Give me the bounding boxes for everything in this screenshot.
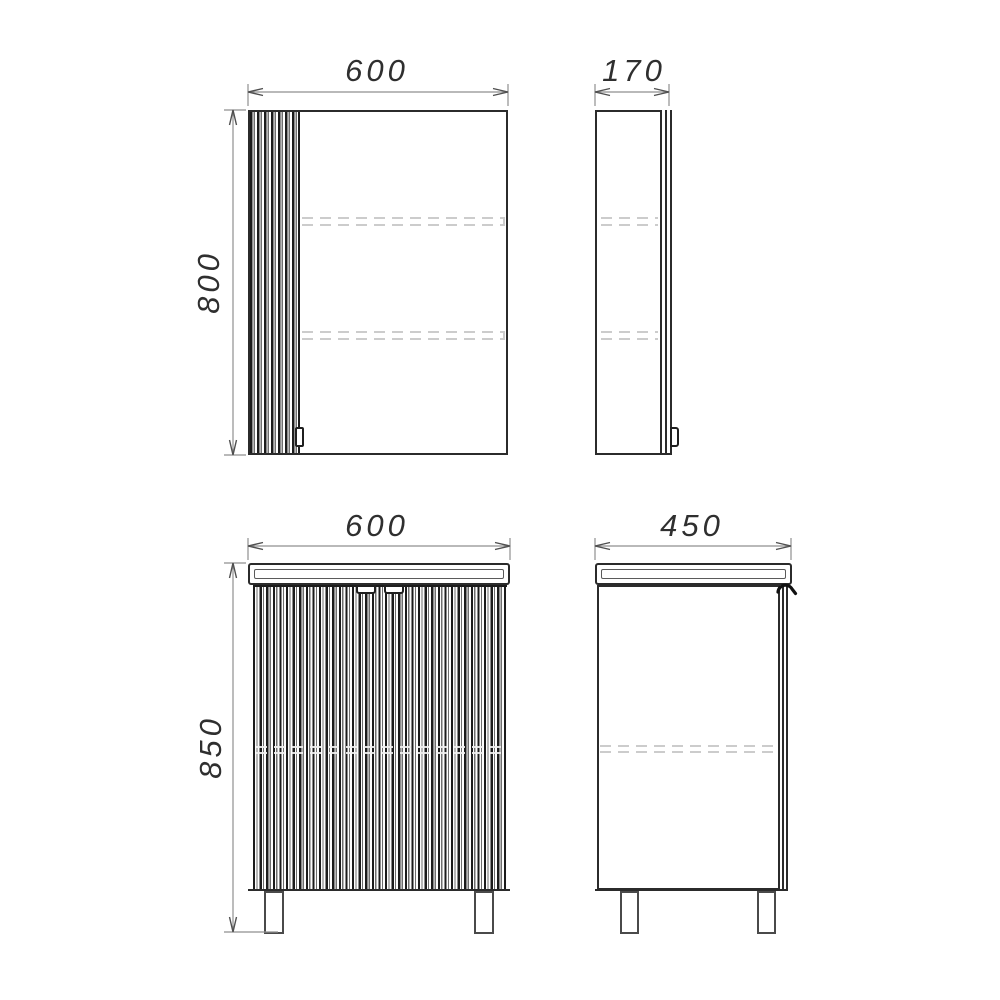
vanity-front-height-dimension-label: 850 — [194, 687, 228, 807]
dimension-lines-layer — [0, 0, 1000, 1000]
mirror-front-width-dimension-label: 600 — [317, 54, 437, 88]
vanity-side-depth-dimension-label: 450 — [632, 509, 752, 543]
mirror-side-depth-dimension-label: 170 — [574, 54, 694, 88]
vanity-front-width-dimension-label: 600 — [317, 509, 437, 543]
mirror-front-height-dimension-label: 800 — [192, 222, 226, 342]
technical-drawing-canvas: 600 170 800 600 450 850 — [0, 0, 1000, 1000]
